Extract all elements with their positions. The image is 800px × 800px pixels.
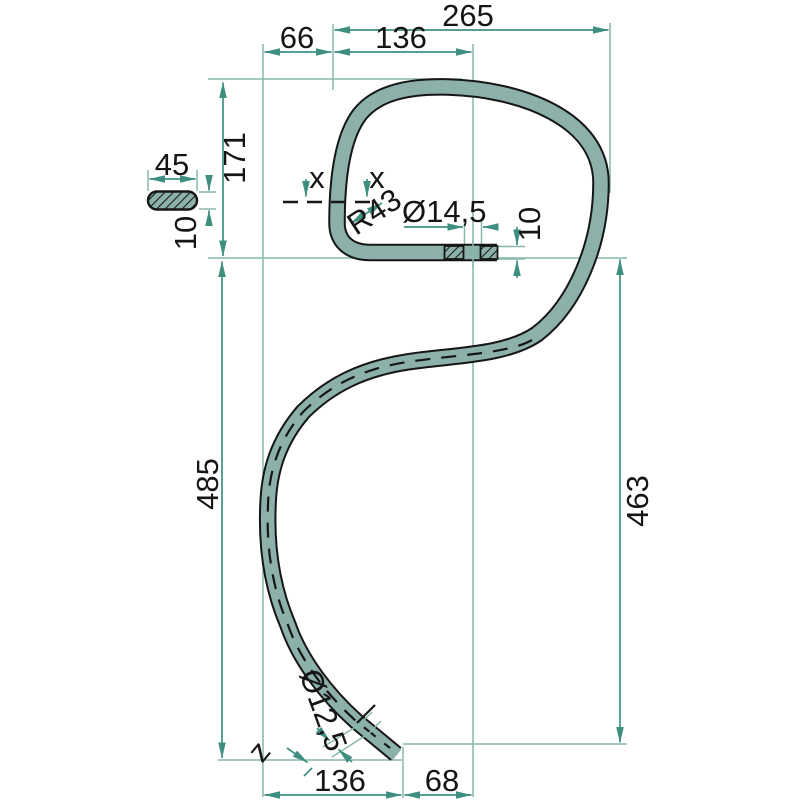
dim-r43-label: R43 xyxy=(341,182,408,242)
cross-section-piece xyxy=(148,192,197,210)
hatch-block-left xyxy=(445,246,464,259)
dim-hole-top-label: Ø14,5 xyxy=(402,194,486,229)
dim-68-label: 68 xyxy=(425,763,459,798)
tip-z-label: z xyxy=(241,734,278,768)
dim-136-bottom-label: 136 xyxy=(314,763,366,798)
dim-10-strip-label: 10 xyxy=(512,207,547,241)
drawing-canvas: 265 136 66 171 485 463 45 10 10 x x R43 … xyxy=(0,0,800,800)
tip-z-leader xyxy=(287,748,312,776)
dim-136-top-label: 136 xyxy=(375,20,427,55)
dim-265-label: 265 xyxy=(442,0,494,33)
dim-485-label: 485 xyxy=(190,458,225,510)
section-x-left-label: x xyxy=(309,160,325,195)
dim-45-label: 45 xyxy=(155,147,189,182)
dim-171-label: 171 xyxy=(217,132,252,184)
dim-10-cross-section-label: 10 xyxy=(168,216,203,250)
technical-drawing: 265 136 66 171 485 463 45 10 10 x x R43 … xyxy=(0,0,800,800)
dim-463-label: 463 xyxy=(620,475,655,527)
hatch-block-right xyxy=(481,246,498,259)
dim-66-label: 66 xyxy=(280,20,314,55)
